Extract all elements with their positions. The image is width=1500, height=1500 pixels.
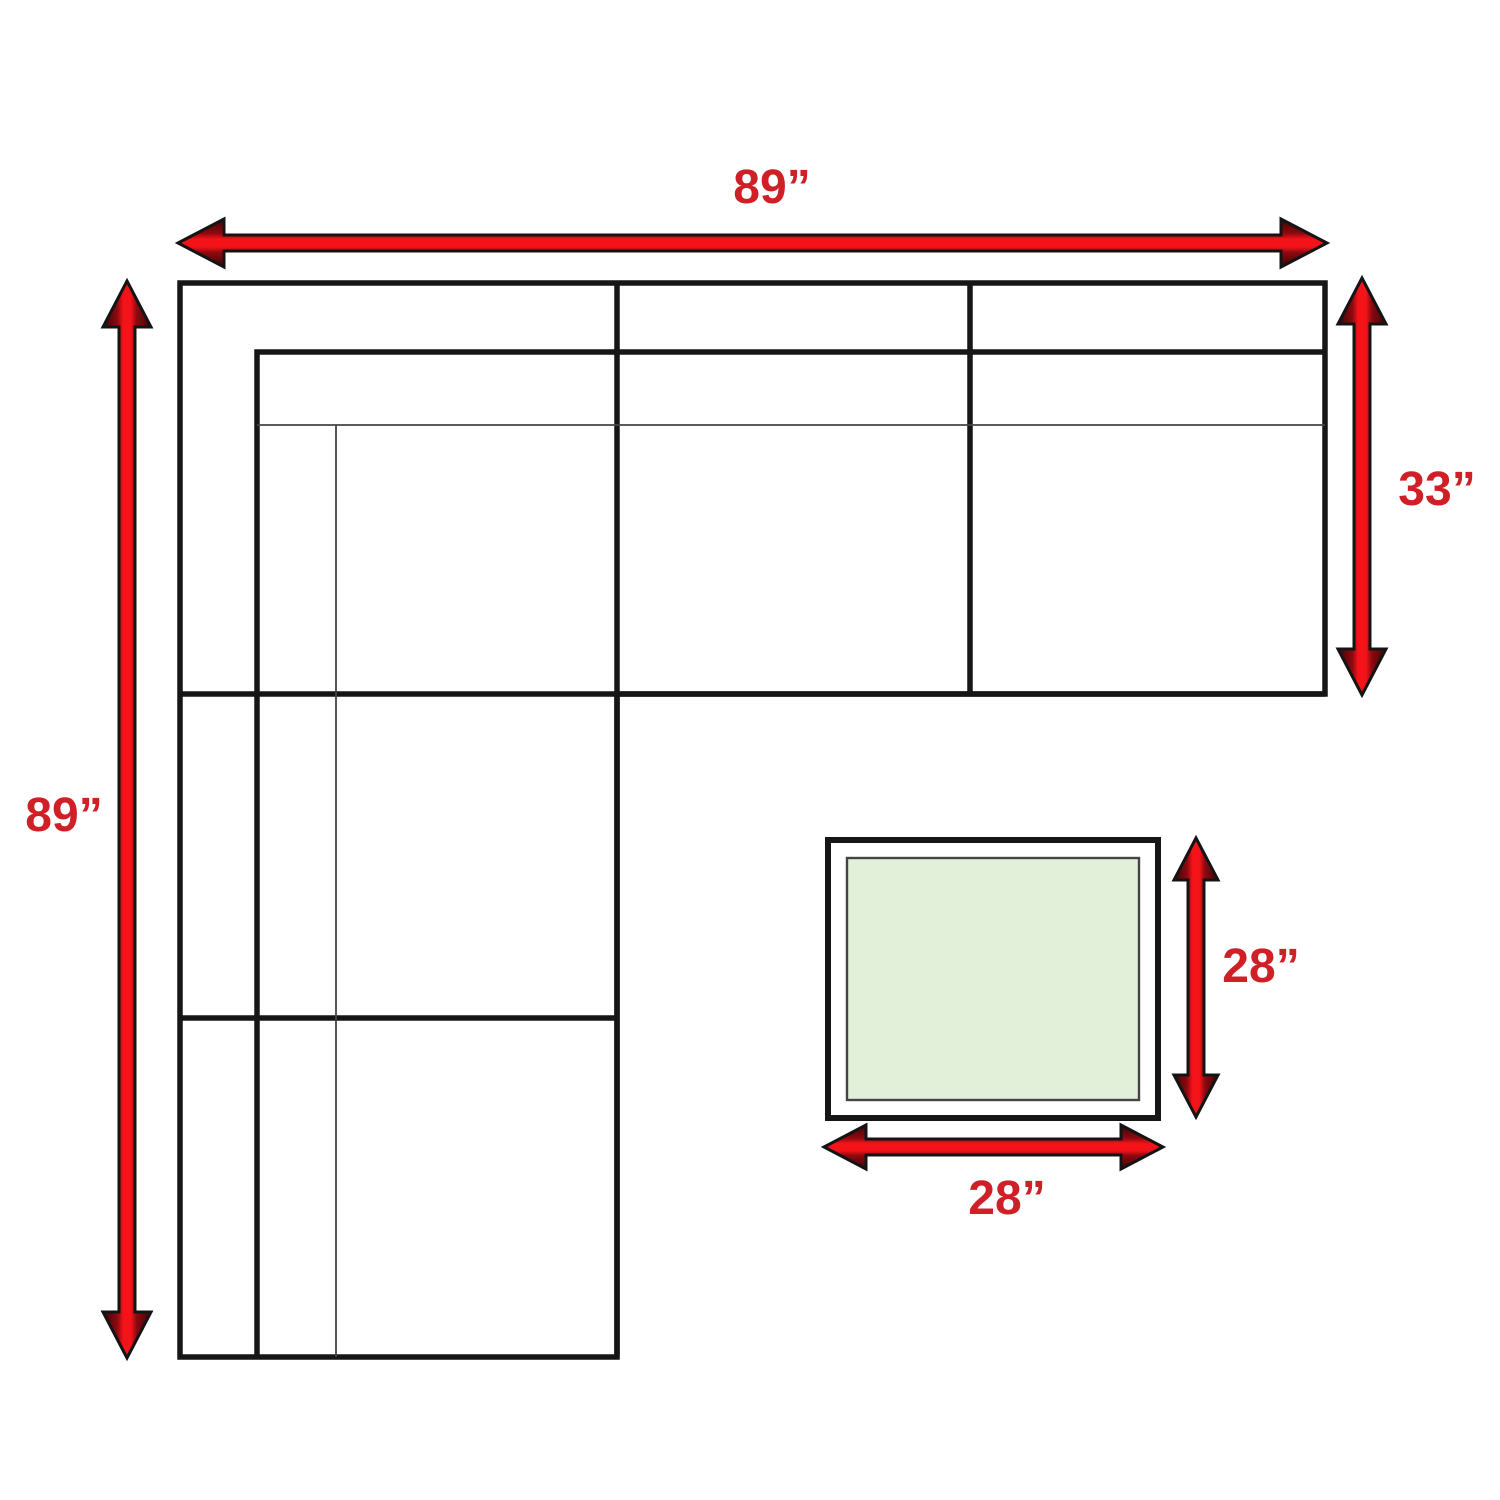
- dimension-arrows: [103, 219, 1386, 1358]
- sofa-height-arrow: [103, 281, 151, 1358]
- diagram-canvas: 89” 89” 33” 28” 28”: [0, 0, 1500, 1500]
- ottoman-height-arrow: [1174, 838, 1218, 1117]
- ottoman: [828, 840, 1158, 1118]
- sofa-plan: [180, 283, 1325, 1357]
- sofa-depth-label: 33”: [1398, 463, 1475, 516]
- sofa-outline: [180, 283, 1325, 1357]
- ottoman-cushion-top: [847, 858, 1139, 1100]
- ottoman-height-label: 28”: [1222, 940, 1299, 993]
- dimension-diagram: 89” 89” 33” 28” 28”: [0, 0, 1500, 1500]
- sofa-depth-arrow: [1338, 278, 1386, 695]
- ottoman-width-label: 28”: [968, 1172, 1045, 1225]
- ottoman-width-arrow: [824, 1125, 1163, 1169]
- sofa-width-arrow: [178, 219, 1327, 267]
- backrest-arm-line: [257, 352, 1325, 1357]
- sofa-height-label: 89”: [25, 789, 102, 842]
- sofa-width-label: 89”: [733, 161, 810, 214]
